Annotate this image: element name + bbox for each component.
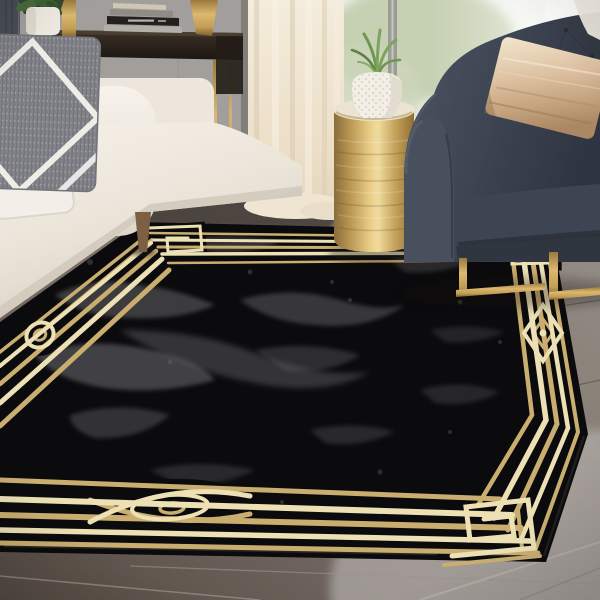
product-photo: [0, 0, 600, 600]
living-room-scene: [0, 0, 600, 600]
vignette: [0, 0, 600, 600]
